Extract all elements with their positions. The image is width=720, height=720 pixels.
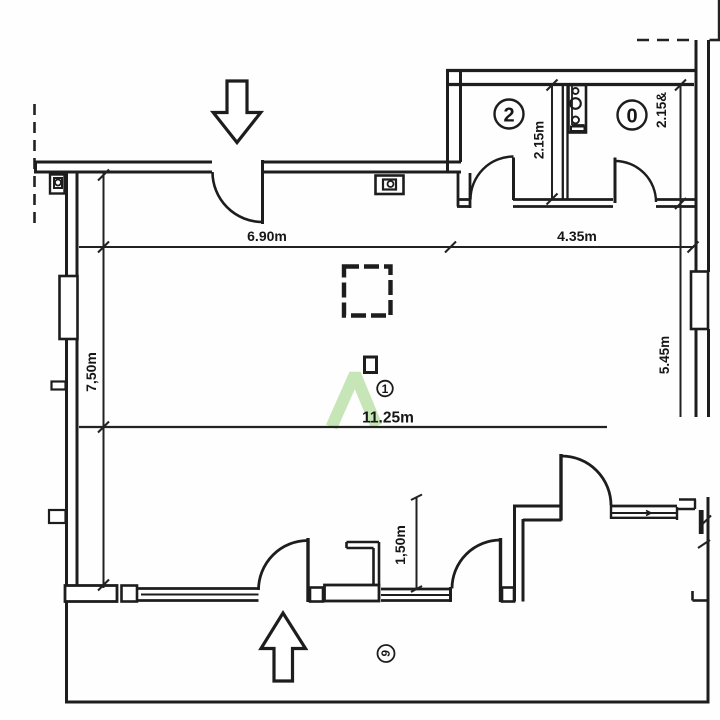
svg-text:5.45m: 5.45m (657, 336, 672, 374)
svg-text:0: 0 (626, 106, 637, 128)
svg-text:1: 1 (382, 382, 389, 396)
svg-text:1,50m: 1,50m (392, 525, 408, 565)
svg-text:2: 2 (503, 105, 514, 127)
svg-text:7,50m: 7,50m (83, 352, 99, 392)
svg-text:2.15&: 2.15& (654, 92, 669, 128)
svg-text:11.25m: 11.25m (362, 410, 414, 427)
svg-text:2.15m: 2.15m (532, 121, 547, 159)
svg-text:6.90m: 6.90m (247, 228, 287, 244)
svg-text:4.35m: 4.35m (557, 228, 597, 244)
